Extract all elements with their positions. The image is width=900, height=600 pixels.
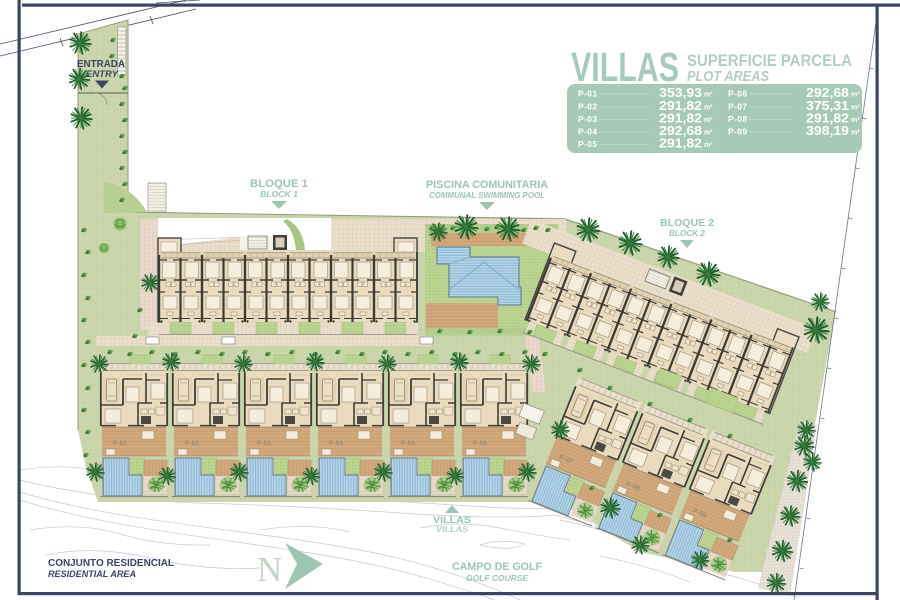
- svg-text:P-06: P-06: [473, 441, 488, 447]
- svg-text:P-03: P-03: [578, 114, 598, 124]
- svg-text:P-08: P-08: [728, 114, 748, 124]
- svg-text:VILLAS: VILLAS: [571, 44, 679, 90]
- svg-text:m²: m²: [851, 117, 860, 124]
- svg-text:P-05: P-05: [401, 441, 416, 447]
- svg-text:353,93: 353,93: [659, 86, 702, 100]
- svg-text:P-02: P-02: [578, 102, 598, 112]
- svg-text:398,19: 398,19: [806, 124, 849, 138]
- svg-text:m²: m²: [851, 105, 860, 112]
- svg-text:CONJUNTO RESIDENCIAL: CONJUNTO RESIDENCIAL: [48, 558, 174, 569]
- svg-text:m²: m²: [704, 105, 713, 112]
- svg-text:ENTRY: ENTRY: [86, 69, 120, 80]
- svg-text:P-04: P-04: [578, 127, 598, 137]
- svg-text:VILLAS: VILLAS: [436, 525, 469, 534]
- svg-text:PLOT AREAS: PLOT AREAS: [687, 68, 769, 85]
- svg-text:P-01: P-01: [578, 89, 598, 99]
- svg-text:m²: m²: [704, 117, 713, 124]
- svg-text:VILLAS: VILLAS: [433, 515, 471, 525]
- svg-text:COMMUNAL SWIMMING POOL: COMMUNAL SWIMMING POOL: [429, 190, 545, 200]
- svg-text:P-01: P-01: [113, 441, 128, 447]
- svg-text:GOLF COURSE: GOLF COURSE: [466, 573, 528, 583]
- svg-text:RESIDENTIAL AREA: RESIDENTIAL AREA: [48, 569, 136, 579]
- svg-text:P-03: P-03: [257, 441, 272, 447]
- svg-text:m²: m²: [851, 130, 860, 137]
- svg-text:P-05: P-05: [578, 139, 598, 149]
- svg-text:P-02: P-02: [185, 441, 200, 447]
- svg-text:BLOCK 1: BLOCK 1: [260, 189, 298, 199]
- svg-text:P-09: P-09: [728, 127, 748, 137]
- svg-text:P-04: P-04: [329, 441, 344, 447]
- svg-text:m²: m²: [704, 130, 713, 137]
- svg-text:292,68: 292,68: [806, 86, 849, 100]
- svg-text:P-07: P-07: [728, 102, 748, 112]
- svg-text:CAMPO DE GOLF: CAMPO DE GOLF: [452, 561, 542, 573]
- svg-text:P-06: P-06: [728, 89, 748, 99]
- svg-text:BLOCK 2: BLOCK 2: [669, 229, 706, 238]
- svg-text:291,82: 291,82: [659, 137, 702, 151]
- svg-text:m²: m²: [704, 92, 713, 99]
- svg-text:BLOQUE 2: BLOQUE 2: [660, 217, 714, 229]
- svg-text:m²: m²: [704, 142, 713, 149]
- svg-text:N: N: [257, 550, 282, 589]
- svg-text:m²: m²: [851, 92, 860, 99]
